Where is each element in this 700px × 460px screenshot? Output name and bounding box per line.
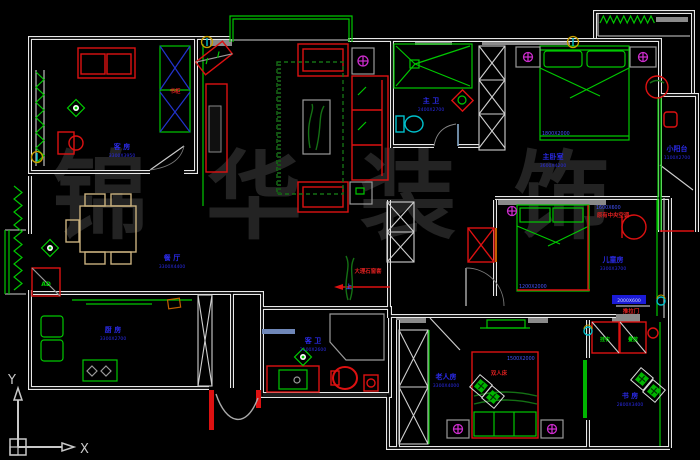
ucs-x-label: X (80, 442, 89, 457)
svg-text:2000X600: 2000X600 (617, 298, 641, 304)
room-label-guest-bath: 客 卫 (304, 336, 321, 345)
annotation-air-duct: AD (41, 281, 51, 288)
wall-lamp-icon (548, 425, 557, 434)
svg-text:3600X4200: 3600X4200 (540, 163, 567, 169)
room-label-small-balcony: 小阳台 (666, 144, 688, 153)
room-label-guest: 客 房 (113, 142, 130, 151)
wall-lamp-icon (358, 56, 368, 66)
room-label-master: 主卧室 (543, 152, 564, 161)
svg-text:3300X3700: 3300X3700 (600, 266, 627, 272)
svg-text:3300X4000: 3300X4000 (433, 383, 460, 389)
dim-elder-bed: 1500X2000 (507, 356, 535, 362)
room-label-dining: 餐 厅 (163, 253, 180, 262)
ucs-y-label: Y (7, 373, 16, 388)
svg-text:2100X2600: 2100X2600 (300, 347, 327, 353)
svg-text:1100X2700: 1100X2700 (664, 155, 691, 161)
dim-master-bed: 1800X2000 (542, 131, 570, 137)
room-label-kitchen: 厨 房 (105, 325, 121, 334)
annotation-up: 上 (346, 283, 352, 291)
annotation-bookshelf: 书柜 (170, 87, 181, 95)
dim-ac: 1600X600 (596, 205, 621, 211)
wall-lamp-icon (524, 53, 533, 62)
floorplan-canvas[interactable]: 锦华装饰 (0, 0, 700, 460)
room-label-study: 书 房 (622, 391, 638, 400)
dim-child-bed: 1200X2000 (519, 284, 547, 290)
entry-door-jamb (209, 390, 214, 430)
annotation-central-ac: 原有中央空调 (597, 211, 630, 219)
svg-text:2400X2700: 2400X2700 (418, 107, 445, 113)
wall-lamp-icon (508, 207, 517, 216)
wall-lamp-icon (639, 53, 648, 62)
annotation-hang: 挂衣 (600, 336, 610, 343)
room-label-master-bath: 主 卫 (423, 96, 439, 105)
cad-viewport[interactable]: 锦华装饰 (0, 0, 700, 460)
study-door-panel (583, 360, 587, 418)
annotation-double-bed: 双人床 (491, 369, 508, 377)
svg-text:3300X4400: 3300X4400 (159, 264, 186, 270)
annotation-marble-sill: 大理石窗套 (355, 267, 383, 275)
wall-lamp-icon (454, 425, 463, 434)
svg-text:3300X2700: 3300X2700 (100, 336, 127, 342)
guest-bath-pocket-door (262, 329, 295, 334)
room-label-elder: 老人房 (435, 372, 457, 381)
svg-text:2800X3400: 2800X3400 (617, 402, 644, 408)
entry-door-jamb (256, 390, 261, 408)
room-label-children: 儿童房 (602, 255, 624, 264)
annotation-slide-door: 推拉门 (623, 307, 640, 315)
annotation-fold: 叠放 (628, 336, 639, 343)
svg-text:3300X3950: 3300X3950 (109, 153, 136, 159)
